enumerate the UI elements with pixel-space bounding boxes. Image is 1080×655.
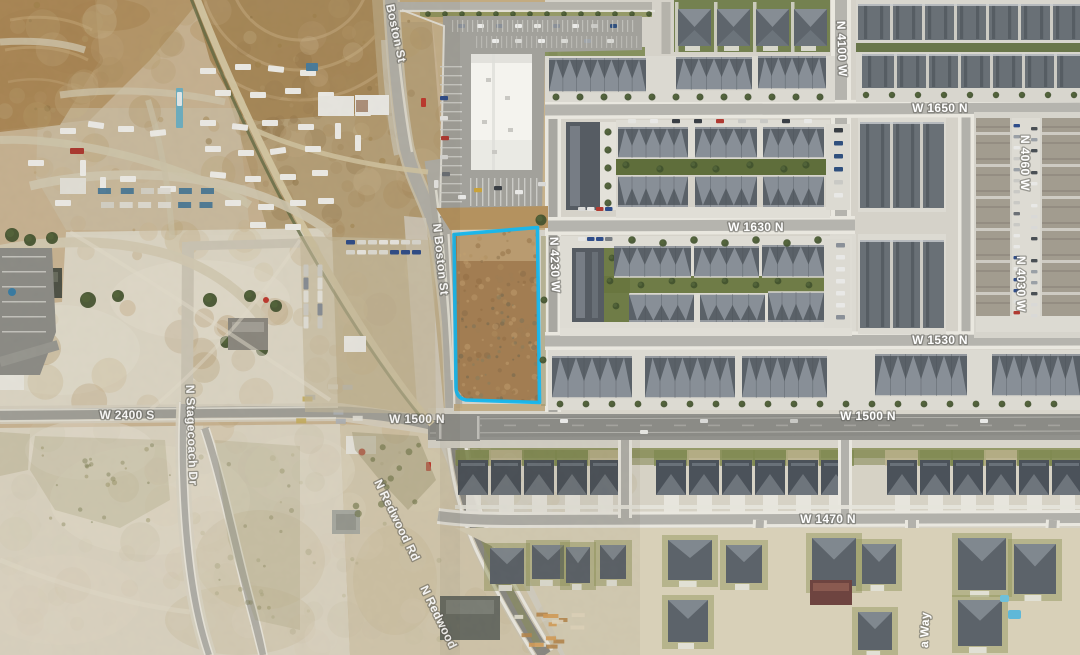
svg-text:W 1630 N: W 1630 N — [728, 220, 784, 234]
svg-text:N 4100 W: N 4100 W — [834, 21, 850, 78]
svg-text:W 1530 N: W 1530 N — [912, 333, 968, 347]
svg-text:N 4230 W: N 4230 W — [547, 237, 563, 294]
svg-text:a Way: a Way — [917, 612, 932, 648]
svg-text:N 4030 W: N 4030 W — [1014, 256, 1028, 312]
svg-text:W 1470 N: W 1470 N — [800, 512, 856, 526]
svg-text:W 1650 N: W 1650 N — [912, 101, 968, 115]
svg-text:W 1500 N: W 1500 N — [840, 409, 896, 423]
svg-text:N 4060 W: N 4060 W — [1018, 135, 1032, 191]
